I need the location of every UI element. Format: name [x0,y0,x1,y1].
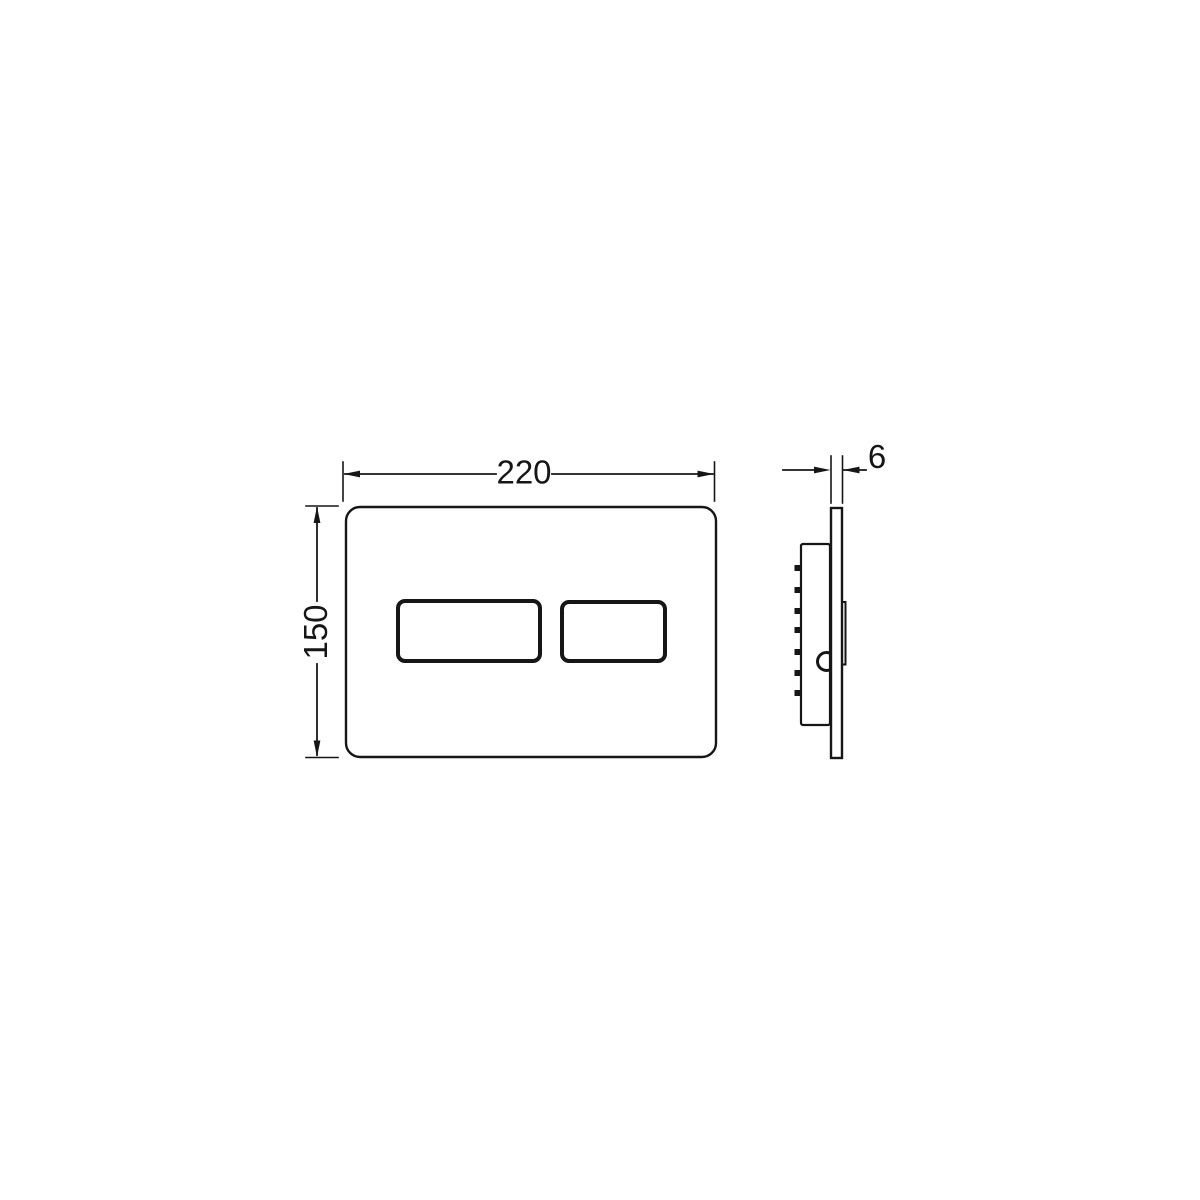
mounting-tooth [795,627,802,633]
mounting-tooth [795,690,802,696]
depth-dimension-label: 6 [868,438,886,475]
flush-plate-drawing: 220 150 [0,0,1200,1200]
technical-drawing-canvas: 220 150 [0,0,1200,1200]
width-dimension-label: 220 [496,454,551,491]
mounting-tooth [795,587,802,593]
height-dimension-label: 150 [297,604,334,659]
mounting-tooth [795,670,802,676]
mounting-tooth [795,608,802,614]
mounting-tooth [795,649,802,655]
mounting-tooth [795,565,802,571]
